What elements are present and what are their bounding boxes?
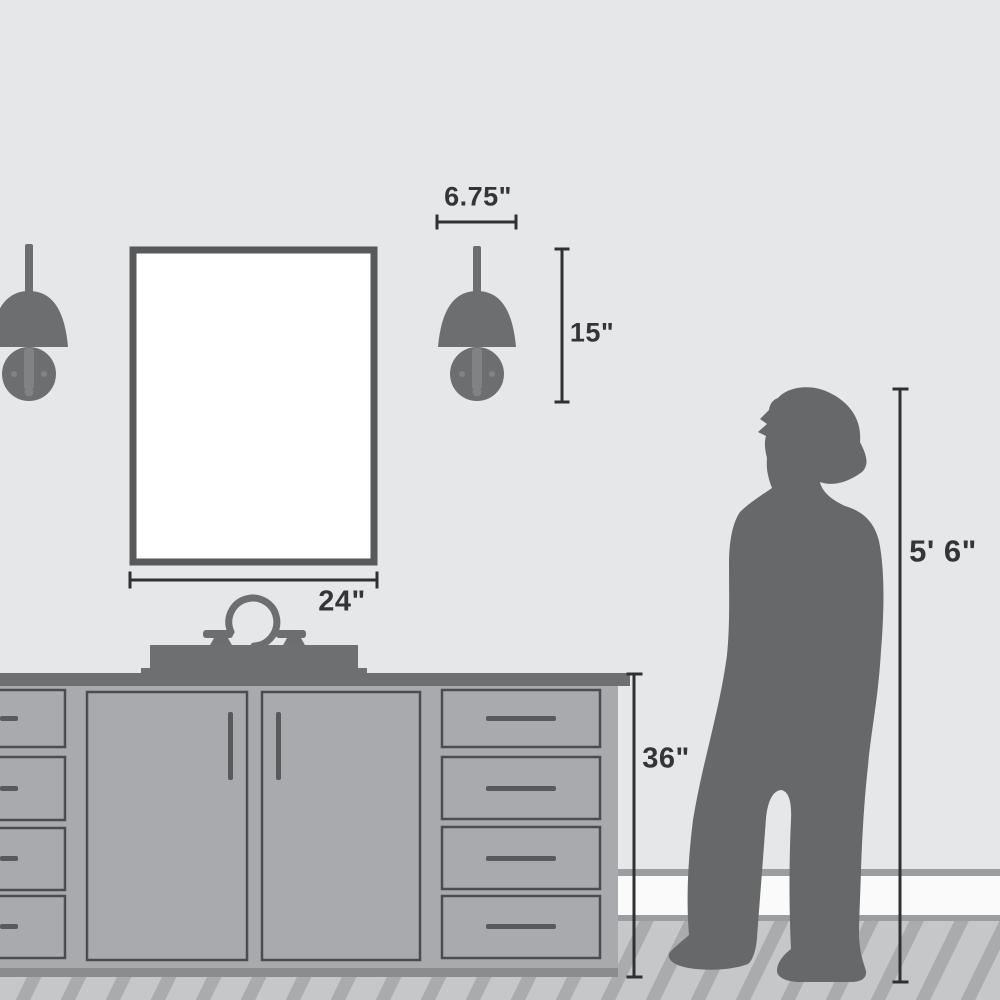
vanity [0,673,630,977]
drawer-left-1-handle [0,716,18,721]
sconce-screw-left [11,371,17,377]
sconce-arm [472,348,482,390]
sconce-screw-left [459,371,465,377]
cabinet-door-left-handle [228,712,233,780]
cabinet-door-left [87,692,247,960]
scale-diagram: 6.75" 15" 24" 36" 5' 6" [0,0,1000,1000]
dim-label-mirror-width: 24" [318,588,366,617]
scene-graphic [0,0,1000,1000]
dim-label-person-height: 5' 6" [909,536,977,567]
drawer-left-2-handle [0,786,18,791]
sconce-stem [473,246,481,298]
sconce-arm [24,348,34,390]
cabinet-door-right [262,692,420,960]
drawer-left-4-handle [0,924,18,929]
faucet-handle-right [276,630,306,638]
dim-label-sconce-height: 15" [570,320,614,347]
dim-label-sconce-width: 6.75" [444,184,512,211]
sconce-screw-bottom [25,388,34,397]
mirror [133,250,374,562]
sconce-screw-right [489,371,495,377]
drawer-right-1-handle [486,716,556,721]
drawer-right-2-handle [486,786,556,791]
drawer-right-3-handle [486,856,556,861]
vanity-toe-kick [0,968,618,977]
sconce-stem [25,244,33,296]
drawer-right-4-handle [486,924,556,929]
dim-label-vanity-height: 36" [642,745,690,774]
sconce-screw-right [41,371,47,377]
cabinet-door-right-handle [276,712,281,780]
faucet-handle-left [203,630,233,638]
vanity-countertop [0,673,630,686]
sconce-screw-bottom [473,388,482,397]
drawer-left-3-handle [0,856,18,861]
